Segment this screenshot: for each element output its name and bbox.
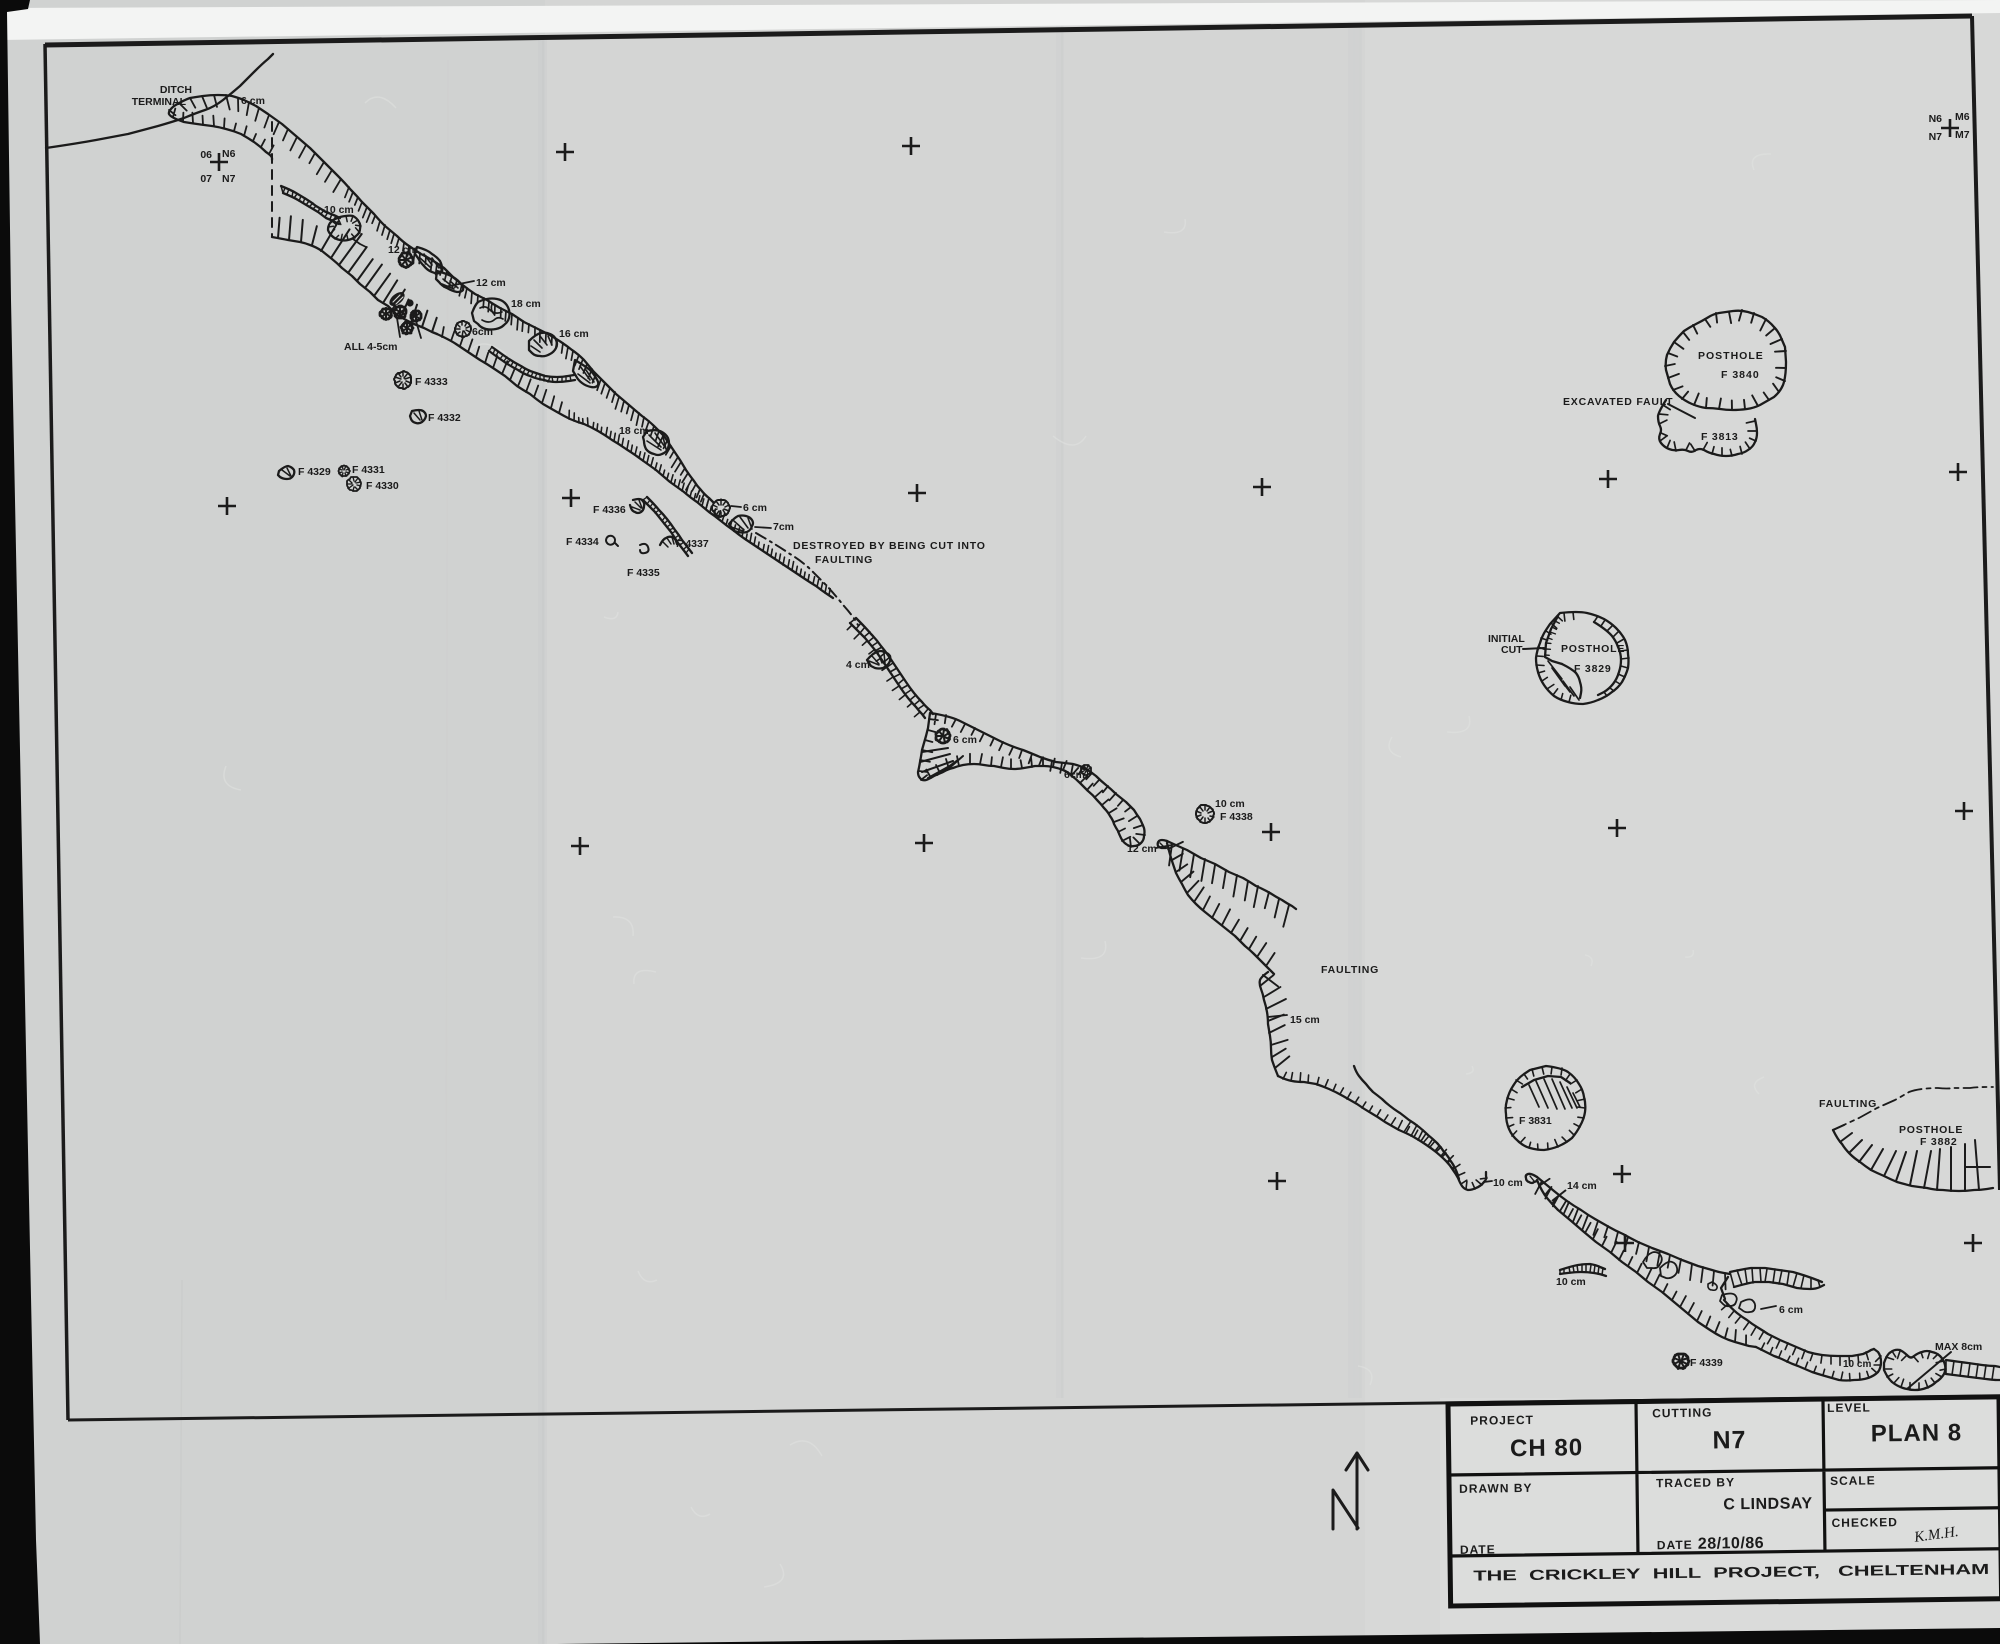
svg-text:F 4339: F 4339 <box>1690 1357 1723 1369</box>
svg-text:POSTHOLE: POSTHOLE <box>1561 643 1625 655</box>
svg-text:7cm: 7cm <box>773 521 794 533</box>
svg-text:M7: M7 <box>1955 129 1970 141</box>
svg-text:F 3840: F 3840 <box>1721 369 1760 381</box>
svg-text:F 4333: F 4333 <box>415 376 448 388</box>
svg-text:F 4335: F 4335 <box>627 567 660 579</box>
svg-text:6cm: 6cm <box>1064 769 1085 781</box>
svg-text:10 cm: 10 cm <box>1493 1177 1523 1189</box>
svg-text:10 cm: 10 cm <box>1215 798 1245 810</box>
svg-text:C LINDSAY: C LINDSAY <box>1723 1495 1812 1513</box>
svg-text:FAULTING: FAULTING <box>815 554 873 566</box>
svg-text:6 cm: 6 cm <box>1779 1304 1803 1316</box>
svg-text:M6: M6 <box>1955 111 1970 123</box>
svg-text:POSTHOLE: POSTHOLE <box>1899 1124 1963 1136</box>
svg-text:15 cm: 15 cm <box>1290 1014 1320 1026</box>
svg-text:6cm: 6cm <box>472 326 493 338</box>
svg-text:CUT: CUT <box>1501 644 1523 656</box>
svg-text:F 4334: F 4334 <box>566 536 599 548</box>
svg-text:10 cm: 10 cm <box>1556 1276 1586 1288</box>
svg-text:16 cm: 16 cm <box>559 328 589 340</box>
svg-text:18 cm: 18 cm <box>511 298 541 310</box>
svg-text:PROJECT: PROJECT <box>1470 1413 1534 1428</box>
svg-text:12 cm: 12 cm <box>476 277 506 289</box>
svg-text:DATE: DATE <box>1657 1538 1693 1552</box>
svg-text:F 3813: F 3813 <box>1701 431 1739 443</box>
svg-text:18 cm: 18 cm <box>619 425 649 437</box>
svg-text:MAX 8cm: MAX 8cm <box>1935 1341 1982 1353</box>
svg-text:F 4330: F 4330 <box>366 480 399 492</box>
svg-text:N7: N7 <box>1929 131 1943 143</box>
svg-text:EXCAVATED FAULT: EXCAVATED FAULT <box>1563 396 1673 408</box>
svg-text:CUTTING: CUTTING <box>1652 1406 1713 1421</box>
svg-text:6 cm: 6 cm <box>953 734 977 746</box>
svg-text:06: 06 <box>200 149 212 161</box>
svg-text:10 cm: 10 cm <box>324 204 354 216</box>
svg-text:F 3882: F 3882 <box>1920 1136 1958 1148</box>
svg-text:07: 07 <box>200 173 212 185</box>
svg-text:DATE: DATE <box>1460 1542 1496 1556</box>
svg-text:ALL 4-5cm: ALL 4-5cm <box>344 341 398 353</box>
svg-text:N6: N6 <box>222 148 236 160</box>
svg-text:PLAN 8: PLAN 8 <box>1871 1419 1963 1447</box>
svg-text:TERMINAL: TERMINAL <box>132 96 187 108</box>
svg-text:CHECKED: CHECKED <box>1831 1515 1898 1530</box>
svg-text:DRAWN BY: DRAWN BY <box>1459 1481 1533 1496</box>
svg-text:FAULTING: FAULTING <box>1819 1098 1877 1110</box>
svg-text:TRACED BY: TRACED BY <box>1656 1475 1735 1490</box>
svg-text:DESTROYED BY BEING CUT INTO: DESTROYED BY BEING CUT INTO <box>793 540 986 552</box>
svg-text:10 cm: 10 cm <box>1843 1359 1871 1370</box>
svg-text:POSTHOLE: POSTHOLE <box>1698 350 1764 362</box>
svg-text:F 4329: F 4329 <box>298 466 331 478</box>
svg-text:F 4336: F 4336 <box>593 504 626 516</box>
svg-text:14 cm: 14 cm <box>1567 1180 1597 1192</box>
svg-text:F 4337: F 4337 <box>676 538 709 550</box>
svg-text:N7: N7 <box>1712 1426 1746 1454</box>
svg-text:N6: N6 <box>1929 113 1943 125</box>
svg-text:F 4332: F 4332 <box>428 412 461 424</box>
svg-text:6 cm: 6 cm <box>241 95 265 107</box>
svg-text:F 3831: F 3831 <box>1519 1115 1552 1127</box>
svg-text:F 4338: F 4338 <box>1220 811 1253 823</box>
svg-text:LEVEL: LEVEL <box>1827 1400 1871 1415</box>
svg-text:FAULTING: FAULTING <box>1321 964 1379 976</box>
svg-text:12 cm: 12 cm <box>1127 843 1157 855</box>
svg-text:N7: N7 <box>222 173 236 185</box>
svg-text:F 3829: F 3829 <box>1574 663 1612 675</box>
svg-text:CH 80: CH 80 <box>1510 1434 1583 1462</box>
svg-text:DITCH: DITCH <box>160 84 192 96</box>
svg-text:12 cm: 12 cm <box>388 244 418 256</box>
svg-text:28/10/86: 28/10/86 <box>1698 1535 1764 1553</box>
svg-text:6 cm: 6 cm <box>743 502 767 514</box>
svg-text:4 cm: 4 cm <box>846 659 870 671</box>
svg-text:SCALE: SCALE <box>1830 1473 1876 1488</box>
svg-text:F 4331: F 4331 <box>352 464 385 476</box>
